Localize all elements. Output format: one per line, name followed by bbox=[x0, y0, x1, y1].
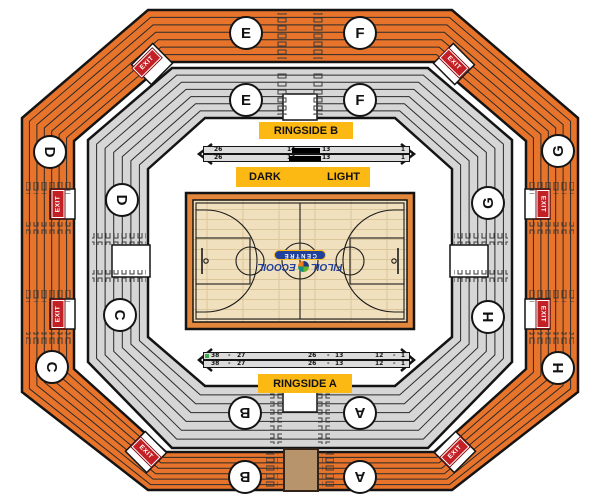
section-letter: E bbox=[241, 92, 251, 109]
exit-sign: EXIT bbox=[52, 300, 65, 328]
ringside-b-text: RINGSIDE B bbox=[274, 125, 338, 137]
courtside-row-b1: 26 14 13 1 bbox=[203, 146, 410, 154]
section-letter: H bbox=[550, 363, 567, 374]
seat-number: - bbox=[228, 361, 231, 367]
section-badge-upper-G: G bbox=[541, 134, 575, 168]
section-badge-lower-G: G bbox=[471, 186, 505, 220]
section-letter: F bbox=[355, 25, 364, 42]
exit-sign: EXIT bbox=[52, 190, 65, 218]
seat-number: 13 bbox=[322, 147, 330, 153]
section-letter: C bbox=[112, 310, 129, 321]
section-letter: G bbox=[480, 197, 497, 209]
section-badge-upper-E: E bbox=[229, 16, 263, 50]
section-letter: B bbox=[240, 405, 251, 422]
ringside-a-text: RINGSIDE A bbox=[273, 378, 337, 390]
courtside-row-b2: 26 14 13 1 bbox=[203, 154, 410, 162]
section-letter: A bbox=[355, 469, 366, 486]
section-letter: E bbox=[241, 25, 251, 42]
exit-text: EXIT bbox=[55, 196, 62, 212]
section-badge-lower-F: F bbox=[343, 83, 377, 117]
ringside-b-label: RINGSIDE B bbox=[259, 122, 353, 139]
section-letter: B bbox=[240, 469, 251, 486]
dark-bench-label: DARK bbox=[249, 171, 281, 183]
seat-number: 26 bbox=[214, 155, 222, 161]
logo-swirl-icon bbox=[298, 261, 309, 272]
section-badge-lower-B: B bbox=[228, 396, 262, 430]
section-badge-upper-D: D bbox=[33, 135, 67, 169]
seat-number: - bbox=[327, 361, 330, 367]
seat-number: - bbox=[393, 353, 396, 359]
officials-table-block bbox=[289, 156, 321, 161]
seat-number: 1 bbox=[401, 361, 405, 367]
section-letter: G bbox=[550, 145, 567, 157]
courtside-row-a2: 38 - 27 26 - 13 12 - 1 bbox=[203, 360, 410, 368]
entrance-tunnel bbox=[284, 449, 318, 491]
seat-number: 27 bbox=[237, 353, 245, 359]
seat-number: - bbox=[228, 353, 231, 359]
court-logo-row: FILOIL ECOOIL bbox=[258, 261, 343, 272]
section-badge-upper-C: C bbox=[35, 350, 69, 384]
bench-labels-bar: DARK LIGHT bbox=[236, 167, 370, 187]
seat-number: 38 bbox=[211, 353, 219, 359]
seat-number: 1 bbox=[401, 353, 405, 359]
section-badge-upper-H: H bbox=[541, 351, 575, 385]
seat-number: 38 bbox=[211, 361, 219, 367]
seat-number: 13 bbox=[322, 155, 330, 161]
section-letter: D bbox=[114, 195, 131, 206]
seat-number: - bbox=[393, 361, 396, 367]
seat-number: 1 bbox=[401, 155, 405, 161]
exit-text: EXIT bbox=[55, 306, 62, 322]
arena-seating-chart: 26 14 13 1 26 14 13 1 38 - 27 26 - 13 12… bbox=[0, 0, 600, 498]
row-marker-green bbox=[205, 354, 209, 358]
seat-number: 27 bbox=[237, 361, 245, 367]
logo-filoil-text: FILOIL bbox=[311, 261, 343, 272]
exit-text: EXIT bbox=[540, 306, 547, 322]
courtside-row-a1: 38 - 27 26 - 13 12 - 1 bbox=[203, 352, 410, 360]
seat-number: 13 bbox=[335, 361, 343, 367]
section-letter: C bbox=[44, 362, 61, 373]
court-logo: FILOIL ECOOIL CENTRE bbox=[255, 243, 345, 279]
seat-number: 26 bbox=[214, 147, 222, 153]
section-badge-lower-H: H bbox=[471, 300, 505, 334]
section-badge-lower-C: C bbox=[103, 298, 137, 332]
section-badge-upper-B: B bbox=[228, 460, 262, 494]
section-letter: A bbox=[355, 405, 366, 422]
seat-number: 26 bbox=[308, 353, 316, 359]
exit-text: EXIT bbox=[540, 196, 547, 212]
seat-number: 12 bbox=[375, 361, 383, 367]
seat-number: 1 bbox=[401, 147, 405, 153]
section-badge-lower-D: D bbox=[105, 183, 139, 217]
section-badge-upper-F: F bbox=[343, 16, 377, 50]
exit-sign: EXIT bbox=[537, 300, 550, 328]
light-bench-label: LIGHT bbox=[327, 171, 360, 183]
seat-number: 13 bbox=[335, 353, 343, 359]
section-badge-lower-A: A bbox=[343, 396, 377, 430]
logo-ecooil-text: ECOOIL bbox=[258, 261, 296, 272]
section-badge-upper-A: A bbox=[343, 460, 377, 494]
section-letter: F bbox=[355, 92, 364, 109]
section-letter: D bbox=[42, 147, 59, 158]
seat-number: 12 bbox=[375, 353, 383, 359]
exit-sign: EXIT bbox=[537, 190, 550, 218]
seat-number: 26 bbox=[308, 361, 316, 367]
section-badge-lower-E: E bbox=[229, 83, 263, 117]
seat-number: - bbox=[327, 353, 330, 359]
ringside-a-label: RINGSIDE A bbox=[258, 374, 352, 393]
logo-centre-text: CENTRE bbox=[274, 250, 326, 260]
officials-table-block bbox=[292, 148, 320, 153]
section-letter: H bbox=[480, 312, 497, 323]
